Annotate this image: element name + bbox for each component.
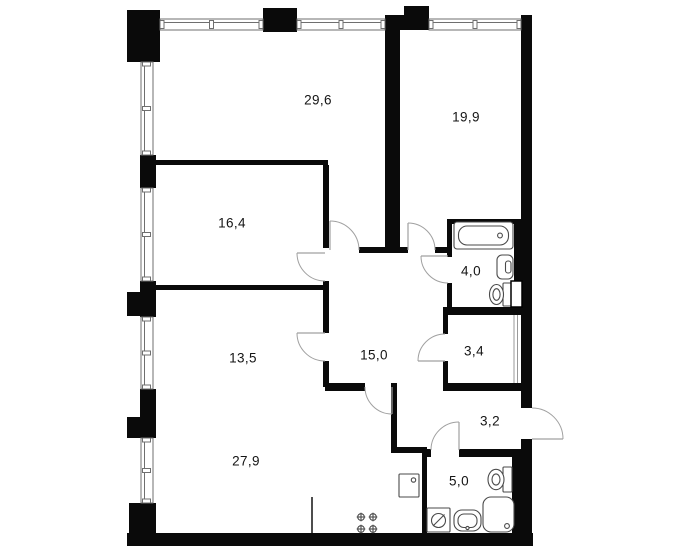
bathtub (454, 222, 513, 249)
floor-plan: 29,6 19,9 16,4 4,0 13,5 15,0 3,4 3,2 27,… (0, 0, 685, 550)
window-tick (143, 351, 151, 355)
door-arc (297, 253, 325, 281)
window-tick (143, 188, 151, 192)
wall (323, 281, 329, 290)
wall (391, 447, 427, 453)
window-tick (143, 438, 151, 442)
door-room-5-0 (431, 422, 459, 450)
door-room-16-4 (297, 253, 325, 281)
wall (443, 361, 448, 383)
door-arc (532, 408, 563, 439)
toilet-shower-room (488, 467, 512, 492)
kitchen-sink (399, 474, 419, 497)
wall (127, 417, 140, 438)
door-arc (365, 387, 392, 414)
window-tick (143, 385, 151, 389)
floor-plan-canvas (0, 0, 685, 550)
door-room-27-9 (365, 387, 392, 414)
wall (155, 285, 328, 290)
wall (263, 8, 297, 32)
door-room-3-4 (418, 334, 445, 361)
wall (140, 389, 156, 438)
toilet-shower-room-part (492, 474, 500, 485)
kitchen-sink-part (399, 474, 419, 497)
window-tick (143, 317, 151, 321)
window-top-3 (429, 19, 521, 30)
stove (357, 513, 378, 534)
window-top-2 (297, 19, 385, 30)
toilet-bathroom (490, 283, 514, 306)
wall (443, 315, 448, 334)
wall (140, 281, 156, 317)
wall (127, 533, 533, 546)
window-tick (143, 277, 151, 281)
door-room-19-9 (408, 223, 435, 250)
wall (323, 165, 329, 248)
window-tick (473, 21, 477, 29)
sink-bathroom (497, 255, 513, 279)
door-arc (297, 333, 325, 361)
door-entrance (532, 408, 563, 439)
wall (521, 15, 532, 408)
door-arc (330, 221, 359, 250)
window-tick (429, 21, 433, 29)
wall (325, 383, 365, 391)
wall (155, 160, 328, 165)
bathtub-part (498, 233, 503, 238)
wall (359, 247, 408, 253)
wall (127, 292, 140, 316)
sink-bathroom-part (506, 261, 512, 273)
window-left-2 (141, 188, 153, 281)
duct-box (511, 281, 522, 307)
wall (422, 453, 427, 533)
window-tick (143, 499, 151, 503)
wall (443, 383, 532, 391)
window-tick (210, 21, 214, 29)
wall (140, 155, 156, 188)
wall (447, 283, 452, 310)
window-tick (143, 62, 151, 66)
kitchen-sink-part (411, 478, 415, 482)
wall (447, 219, 452, 257)
door-arc (421, 256, 448, 283)
window-left-3 (141, 317, 153, 389)
window-tick (339, 21, 343, 29)
shower-part (505, 524, 510, 529)
window-tick (143, 107, 151, 111)
window-tick (160, 21, 164, 29)
door-room-29-6 (330, 221, 359, 250)
wall (323, 290, 329, 333)
window-left-1 (141, 62, 153, 155)
window-tick (143, 469, 151, 473)
washing-machine (427, 508, 450, 532)
door-arc (408, 223, 435, 250)
sink-shower-room (454, 510, 481, 531)
wall (443, 307, 532, 315)
window-tick (143, 151, 151, 155)
window-top-1 (160, 19, 263, 30)
duct-box-part (511, 281, 522, 307)
window-tick (381, 21, 385, 29)
wall (385, 15, 400, 250)
sink-shower-room-part (458, 514, 477, 528)
wall (129, 503, 156, 545)
sink-shower-room-part (466, 526, 469, 529)
wall (459, 449, 530, 457)
wall (127, 10, 160, 62)
window-tick (297, 21, 301, 29)
door-bathroom (421, 256, 448, 283)
door-arc (431, 422, 459, 450)
toilet-bathroom-part (493, 289, 500, 301)
window-tick (517, 21, 521, 29)
door-room-13-5 (297, 333, 325, 361)
door-arc (418, 334, 445, 361)
shower (483, 497, 514, 532)
window-left-4 (141, 438, 153, 503)
window-tick (259, 21, 263, 29)
window-tick (143, 233, 151, 237)
